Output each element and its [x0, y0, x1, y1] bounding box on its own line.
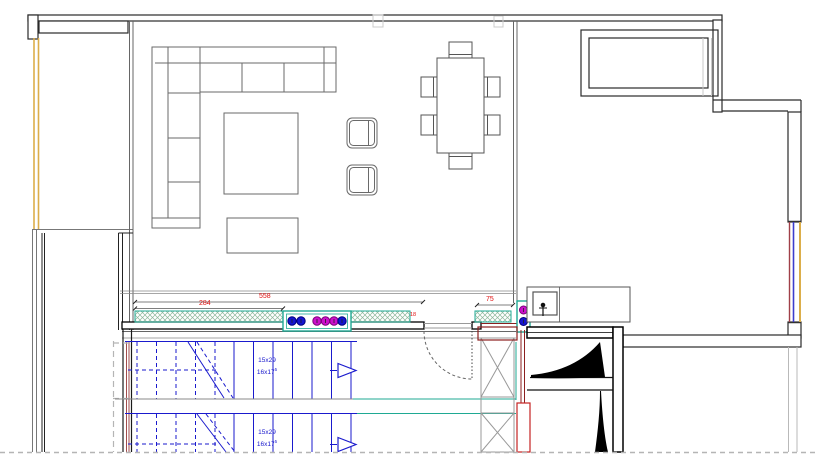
stairs-upper-flight [125, 342, 357, 399]
armchair-1 [347, 118, 377, 148]
walls-outer [28, 15, 801, 347]
balcony-divider [119, 21, 134, 330]
stair-spec-risers: 16x175 [244, 437, 290, 449]
wall-kitchen-south-east [623, 335, 801, 347]
stair-section-fill-upper [531, 342, 605, 378]
stair-spec-sup: 5 [275, 439, 278, 444]
sink [533, 292, 557, 315]
floor-plan-drawing [0, 0, 819, 468]
stairwell-dashed-outline [113, 341, 131, 452]
stair-spec-treads: 15x29 [244, 356, 290, 365]
stair-spec-sup: 5 [275, 367, 278, 372]
closet-top-right [581, 30, 718, 96]
stair-spec-risers: 16x175 [244, 365, 290, 377]
wall-right-upper [788, 112, 801, 222]
stair-spec-lower: 15x29 16x175 [244, 428, 290, 449]
dim-label-75: 75 [486, 296, 494, 303]
armchair-2 [347, 165, 377, 195]
window-right-colored [788, 222, 801, 323]
dining-table [437, 58, 484, 153]
dining-chair [484, 77, 500, 97]
structure-lower-right [527, 327, 623, 452]
hatch-strip-long [135, 311, 410, 322]
living-floor-edge [120, 291, 516, 294]
stair-landing [115, 342, 516, 414]
shaft-xbrace [481, 338, 514, 452]
dining-chair [449, 153, 472, 169]
partition-living-kitchen [514, 21, 518, 303]
stair-direction-arrow [338, 438, 356, 452]
kitchen-counter [527, 287, 630, 322]
stairs-lower-flight [125, 414, 357, 453]
coffee-table [224, 113, 298, 194]
stair-spec-upper: 15x29 16x175 [244, 356, 290, 377]
wall-right-lower-gray [789, 347, 798, 452]
wall-left-lower [33, 229, 134, 452]
stair-spec-treads: 15x29 [244, 428, 290, 437]
stair-side-walls [123, 329, 132, 452]
dim-label-558: 558 [259, 293, 271, 300]
dining-chair [421, 115, 437, 135]
dining-chair [484, 115, 500, 135]
dimension-lines [133, 300, 515, 311]
dining-chair [449, 42, 472, 58]
hatch-strip-short [475, 311, 511, 322]
dim-label-284: 284 [199, 300, 211, 307]
dining-chair [421, 77, 437, 97]
stair-direction-arrow [338, 364, 356, 378]
socket-box-horizontal [283, 311, 351, 331]
tv-bench [227, 218, 298, 253]
dining-set [421, 42, 500, 169]
dim-label-18: 18 [410, 313, 416, 319]
beam-top-left [39, 21, 128, 33]
floor-plan-canvas[interactable]: 284 558 18 75 15x29 16x175 15x29 16x175 [0, 0, 819, 468]
window-left-yellow [34, 38, 39, 229]
red-box-bottom [517, 403, 530, 452]
stair-section-fill-lower [595, 391, 608, 452]
